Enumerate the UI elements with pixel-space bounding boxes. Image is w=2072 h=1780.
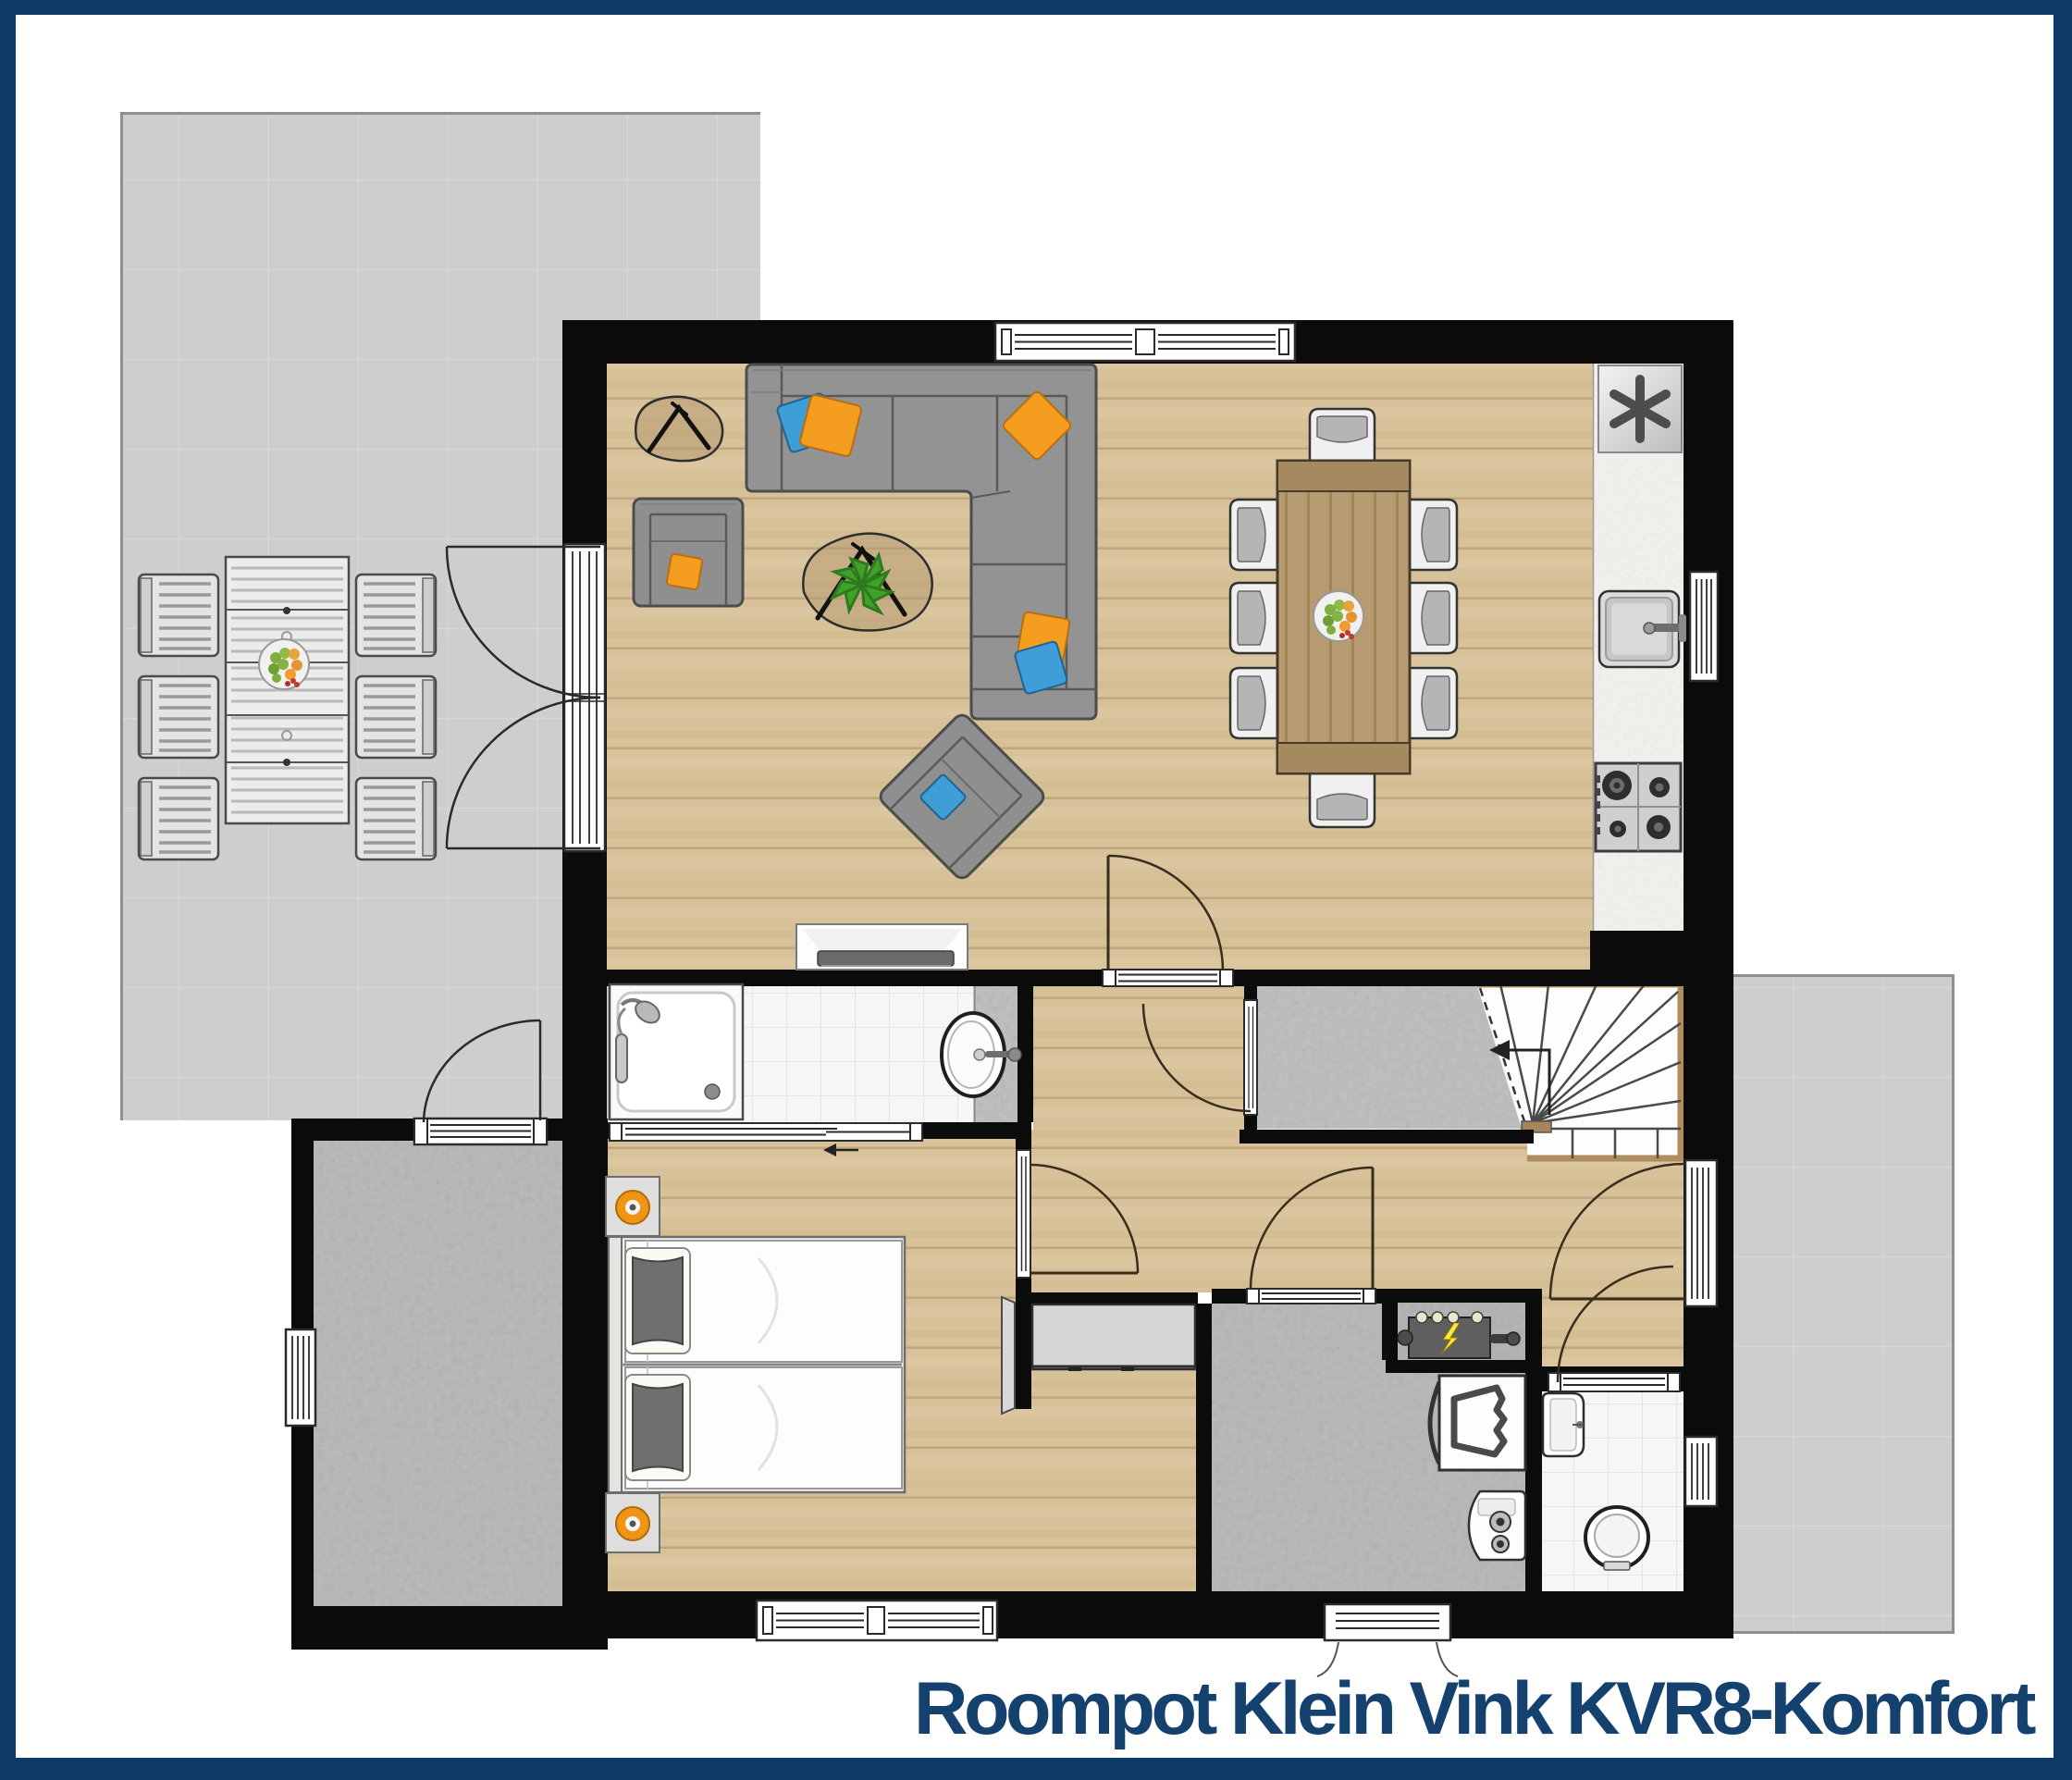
svg-text:Roompot Klein Vink KVR8-Komfor: Roompot Klein Vink KVR8-Komfort xyxy=(914,1667,2036,1750)
